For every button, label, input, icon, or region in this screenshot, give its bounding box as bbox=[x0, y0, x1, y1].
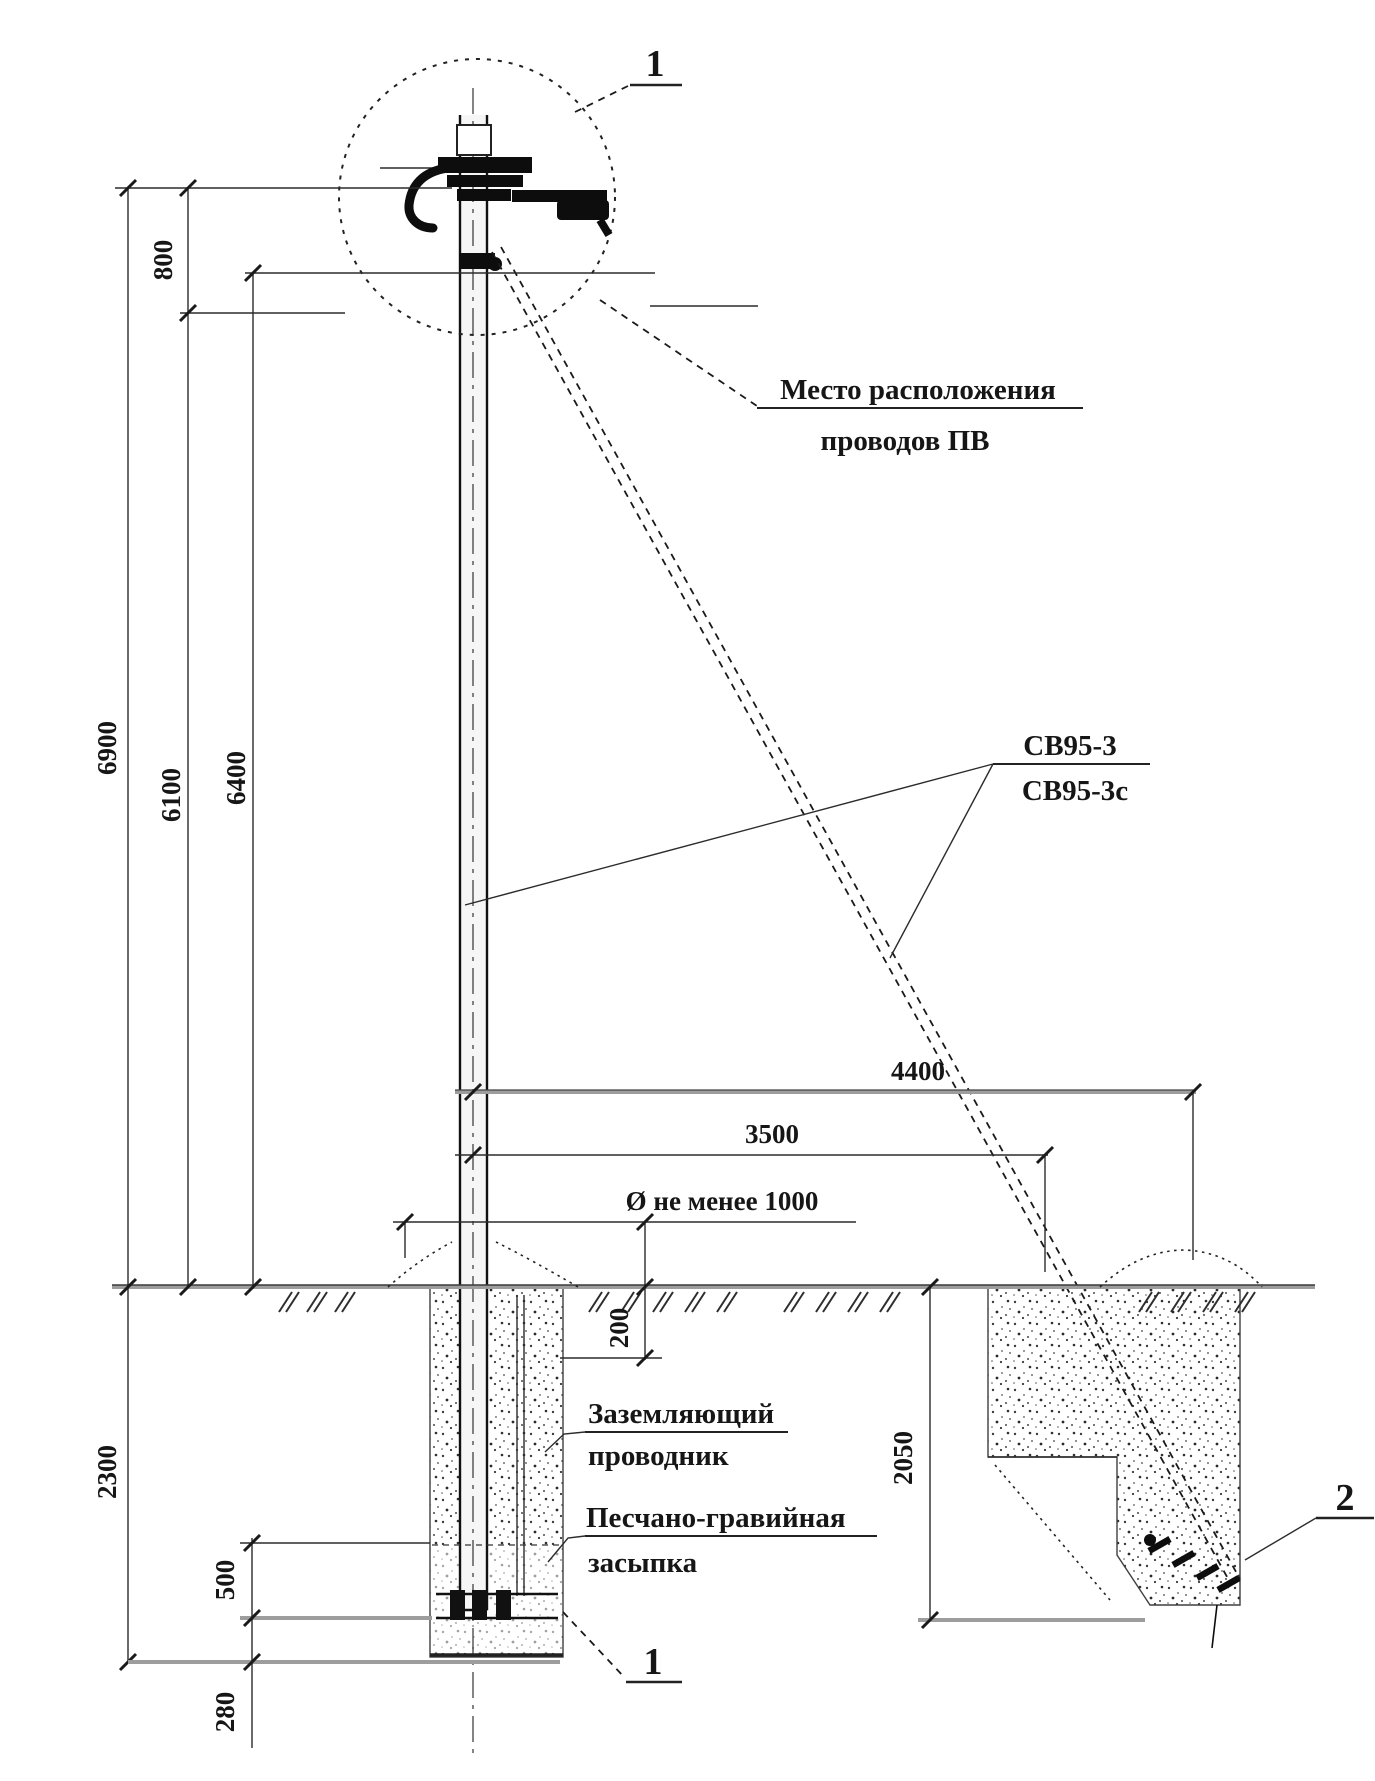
anchor-ref-label: 2 bbox=[1336, 1477, 1355, 1519]
callout-backfill: Песчано-гравийная засыпка bbox=[548, 1502, 877, 1579]
callout-wire-location-line1: Место расположения bbox=[780, 374, 1056, 406]
dim-2300-label: 2300 bbox=[92, 1445, 122, 1499]
detail-ref-bottom-label: 1 bbox=[644, 1641, 663, 1683]
detail-ref-top: 1 bbox=[575, 43, 682, 112]
anchor-pit bbox=[988, 1286, 1240, 1605]
callout-wire-location-line2: проводов ПВ bbox=[820, 425, 989, 457]
dim-200-label: 200 bbox=[604, 1308, 634, 1349]
callout-pole-type-line2: СВ95-3с bbox=[1022, 775, 1128, 807]
detail-ref-top-label: 1 bbox=[646, 43, 665, 85]
callout-backfill-line2: засыпка bbox=[588, 1547, 698, 1579]
callout-pole-type: СВ95-3 СВ95-3с bbox=[465, 730, 1150, 958]
callout-wire-location: Место расположения проводов ПВ bbox=[600, 300, 1083, 457]
detail-ref-bottom: 1 bbox=[563, 1612, 682, 1683]
dim-2050-label: 2050 bbox=[888, 1431, 918, 1485]
mound-right-slope bbox=[496, 1242, 578, 1287]
dimension-4400: 4400 bbox=[455, 1056, 1201, 1260]
dimension-200: 200 bbox=[560, 1279, 662, 1366]
dim-280-label: 280 bbox=[210, 1692, 240, 1733]
anchor-pit-slope bbox=[995, 1465, 1110, 1600]
callout-pole-type-line1: СВ95-3 bbox=[1023, 730, 1116, 762]
callout-grounding-line1: Заземляющий bbox=[588, 1398, 774, 1430]
dim-3500-label: 3500 bbox=[745, 1119, 799, 1149]
callout-grounding: Заземляющий проводник bbox=[545, 1398, 788, 1472]
callout-backfill-line1: Песчано-гравийная bbox=[586, 1502, 846, 1534]
mound-left-slope bbox=[388, 1242, 452, 1287]
dim-6100-label: 6100 bbox=[156, 768, 186, 822]
dim-6900-label: 6900 bbox=[92, 721, 122, 775]
anchor-mound bbox=[1100, 1250, 1262, 1287]
dim-6400-label: 6400 bbox=[221, 751, 251, 805]
dim-800-label: 800 bbox=[148, 240, 178, 281]
drawing-svg: 1 800 69 bbox=[0, 0, 1375, 1781]
pole bbox=[460, 88, 487, 1758]
pole-installation-drawing: 1 800 69 bbox=[0, 0, 1375, 1781]
callout-grounding-line2: проводник bbox=[588, 1440, 729, 1472]
dim-500-label: 500 bbox=[210, 1560, 240, 1601]
dim-4400-label: 4400 bbox=[891, 1056, 945, 1086]
pole-top-hardware bbox=[380, 125, 609, 271]
anchor-ref: 2 bbox=[1245, 1477, 1374, 1560]
dim-pit-diameter-label: Ø не менее 1000 bbox=[626, 1186, 819, 1216]
